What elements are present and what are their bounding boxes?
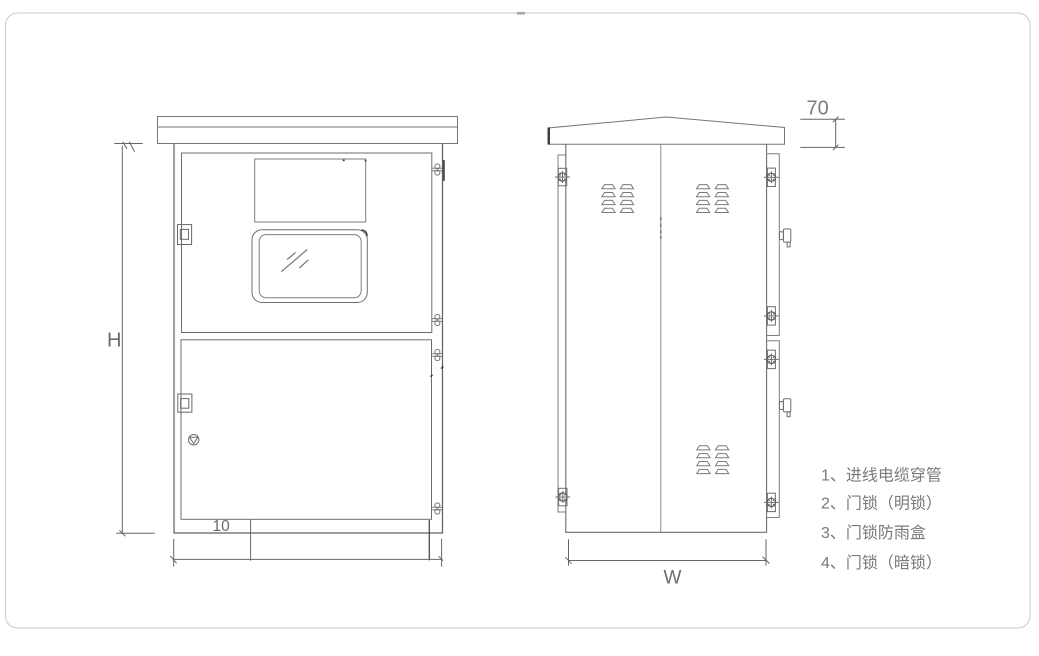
svg-text:2、门锁（明锁）: 2、门锁（明锁） xyxy=(821,495,942,513)
svg-text:70: 70 xyxy=(807,98,829,120)
svg-text:10: 10 xyxy=(213,518,231,535)
svg-text:H: H xyxy=(107,330,121,352)
svg-text:W: W xyxy=(664,568,682,589)
svg-text:4、门锁（暗锁）: 4、门锁（暗锁） xyxy=(821,554,942,572)
svg-text:3、门锁防雨盒: 3、门锁防雨盒 xyxy=(821,524,926,542)
svg-text:1、进线电缆穿管: 1、进线电缆穿管 xyxy=(821,467,942,485)
